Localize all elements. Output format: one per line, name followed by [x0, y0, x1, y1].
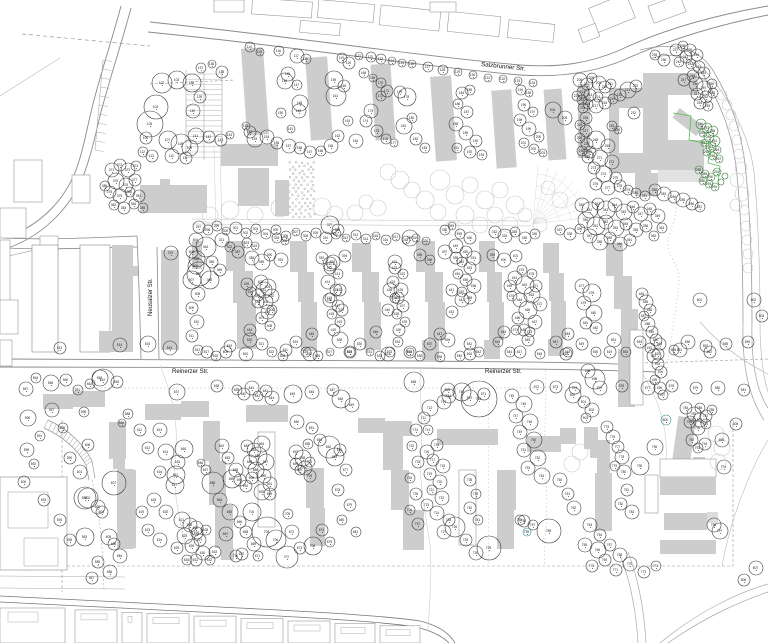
svg-text:768: 768: [617, 553, 623, 557]
svg-text:792: 792: [689, 438, 695, 442]
svg-text:645: 645: [290, 392, 296, 396]
svg-text:335: 335: [522, 236, 528, 240]
svg-text:541: 541: [467, 342, 473, 346]
svg-text:716: 716: [424, 450, 430, 454]
svg-text:661: 661: [173, 473, 179, 477]
svg-text:229: 229: [584, 142, 590, 146]
svg-text:736: 736: [407, 508, 413, 512]
svg-text:711: 711: [421, 416, 426, 420]
svg-text:199: 199: [526, 127, 532, 131]
svg-text:270: 270: [587, 150, 593, 154]
svg-text:459: 459: [457, 232, 463, 236]
svg-text:346: 346: [630, 205, 636, 209]
svg-text:501: 501: [581, 400, 587, 404]
svg-text:739: 739: [473, 492, 479, 496]
svg-text:466: 466: [515, 316, 521, 320]
svg-text:780: 780: [621, 470, 627, 474]
svg-text:676: 676: [337, 448, 343, 452]
svg-text:359: 359: [607, 236, 613, 240]
svg-text:237: 237: [673, 48, 679, 52]
svg-text:771: 771: [613, 568, 619, 572]
svg-text:619: 619: [139, 510, 145, 514]
svg-text:467: 467: [532, 320, 538, 324]
svg-text:818: 818: [563, 352, 569, 356]
svg-text:482: 482: [593, 326, 599, 330]
svg-text:560: 560: [63, 378, 69, 382]
svg-text:757: 757: [530, 523, 536, 527]
svg-text:321: 321: [219, 238, 225, 242]
svg-text:688: 688: [253, 468, 259, 472]
svg-text:388: 388: [249, 256, 255, 260]
svg-text:498: 498: [592, 377, 598, 381]
svg-text:663: 663: [225, 456, 231, 460]
svg-text:351: 351: [593, 224, 599, 228]
svg-text:654: 654: [317, 438, 323, 442]
svg-text:590: 590: [67, 456, 73, 460]
svg-text:112: 112: [140, 150, 145, 154]
svg-text:116: 116: [276, 49, 281, 53]
svg-text:737: 737: [415, 522, 421, 526]
svg-text:710: 710: [233, 554, 239, 558]
svg-text:434: 434: [265, 310, 271, 314]
svg-text:131: 131: [485, 76, 491, 80]
svg-text:667: 667: [223, 532, 229, 536]
svg-text:124: 124: [389, 59, 395, 63]
svg-text:572: 572: [534, 385, 540, 389]
svg-text:704: 704: [249, 510, 255, 514]
svg-text:618: 618: [151, 498, 157, 502]
svg-text:816: 816: [467, 352, 473, 356]
svg-text:714: 714: [425, 428, 431, 432]
svg-text:820: 820: [655, 352, 661, 356]
svg-text:636: 636: [194, 531, 200, 535]
svg-text:448: 448: [501, 330, 507, 334]
svg-text:630: 630: [200, 551, 206, 555]
svg-text:717: 717: [430, 458, 436, 462]
svg-text:314: 314: [363, 237, 369, 241]
svg-text:460: 460: [467, 236, 473, 240]
svg-text:372: 372: [117, 163, 123, 167]
svg-text:253: 253: [710, 91, 716, 95]
svg-text:508: 508: [195, 292, 201, 296]
svg-text:428: 428: [394, 312, 400, 316]
svg-text:274: 274: [601, 172, 607, 176]
svg-text:430: 430: [396, 328, 402, 332]
svg-text:600: 600: [21, 480, 27, 484]
svg-text:499: 499: [585, 369, 591, 373]
svg-text:207: 207: [584, 82, 590, 86]
svg-text:521: 521: [259, 342, 265, 346]
svg-text:515: 515: [145, 342, 151, 346]
svg-text:813: 813: [347, 350, 353, 354]
svg-text:352: 352: [603, 220, 609, 224]
svg-text:707: 707: [284, 555, 290, 559]
svg-text:658: 658: [210, 481, 216, 485]
svg-text:181: 181: [401, 124, 407, 128]
svg-text:471: 471: [533, 284, 539, 288]
svg-text:718: 718: [440, 464, 446, 468]
svg-text:147: 147: [294, 83, 300, 87]
svg-text:749: 749: [517, 430, 523, 434]
svg-text:715: 715: [434, 443, 440, 447]
svg-text:241: 241: [683, 55, 689, 59]
svg-text:479: 479: [581, 301, 587, 305]
svg-text:553: 553: [637, 340, 643, 344]
svg-text:640: 640: [241, 392, 247, 396]
svg-text:581: 581: [741, 388, 747, 392]
svg-text:585: 585: [95, 560, 101, 564]
svg-text:255: 255: [705, 104, 711, 108]
svg-text:789: 789: [687, 420, 693, 424]
svg-text:465: 465: [525, 308, 531, 312]
svg-text:302: 302: [243, 231, 249, 235]
svg-text:629: 629: [174, 546, 180, 550]
svg-text:334: 334: [512, 230, 518, 234]
svg-text:561: 561: [75, 388, 81, 392]
svg-text:744: 744: [446, 394, 452, 398]
svg-text:197: 197: [530, 110, 536, 114]
svg-text:288: 288: [696, 168, 702, 172]
svg-text:258: 258: [710, 129, 716, 133]
svg-text:571: 571: [481, 392, 487, 396]
svg-text:745: 745: [509, 394, 515, 398]
svg-text:369: 369: [217, 268, 223, 272]
svg-text:146: 146: [282, 79, 288, 83]
svg-text:766: 766: [595, 548, 601, 552]
svg-text:762: 762: [571, 506, 577, 510]
svg-text:436: 436: [327, 298, 333, 302]
svg-text:659: 659: [229, 477, 235, 481]
svg-text:125: 125: [399, 61, 405, 65]
svg-text:620: 620: [163, 510, 169, 514]
svg-text:599: 599: [24, 448, 30, 452]
svg-text:156: 156: [274, 141, 280, 145]
svg-text:695: 695: [233, 468, 239, 472]
svg-text:671: 671: [255, 554, 261, 558]
svg-text:422: 422: [392, 266, 398, 270]
svg-text:591: 591: [37, 434, 43, 438]
svg-text:777: 777: [615, 445, 621, 449]
svg-text:188: 188: [453, 122, 459, 126]
svg-text:693: 693: [259, 490, 265, 494]
svg-text:172: 172: [378, 94, 384, 98]
svg-text:665: 665: [227, 510, 233, 514]
svg-text:652: 652: [326, 445, 332, 449]
svg-text:118: 118: [303, 57, 308, 61]
svg-text:285: 285: [680, 198, 686, 202]
svg-text:435: 435: [337, 288, 343, 292]
svg-text:719: 719: [427, 472, 433, 476]
svg-text:588: 588: [125, 412, 131, 416]
svg-text:587: 587: [89, 576, 95, 580]
svg-text:456: 456: [471, 284, 477, 288]
svg-text:677: 677: [343, 468, 349, 472]
svg-text:132: 132: [500, 77, 506, 81]
svg-text:649: 649: [349, 403, 355, 407]
svg-text:152: 152: [247, 130, 253, 134]
svg-text:266: 266: [710, 154, 716, 158]
svg-text:113: 113: [149, 154, 154, 158]
svg-text:505: 505: [189, 250, 195, 254]
svg-text:512: 512: [195, 348, 201, 352]
svg-text:201: 201: [521, 141, 527, 145]
svg-text:155: 155: [243, 124, 249, 128]
svg-text:497: 497: [660, 393, 666, 397]
svg-text:109: 109: [187, 146, 193, 150]
svg-text:385: 385: [140, 206, 146, 210]
svg-text:614: 614: [163, 450, 169, 454]
svg-text:674: 674: [319, 528, 325, 532]
svg-text:153: 153: [252, 137, 258, 141]
svg-text:380: 380: [127, 190, 133, 194]
svg-text:564: 564: [33, 376, 39, 380]
svg-text:Reinerzer Str.: Reinerzer Str.: [172, 369, 209, 375]
svg-text:495: 495: [652, 378, 658, 382]
svg-text:518: 518: [213, 354, 219, 358]
svg-text:170: 170: [378, 81, 384, 85]
svg-text:668: 668: [243, 530, 249, 534]
svg-text:742: 742: [476, 397, 482, 401]
svg-text:760: 760: [557, 478, 563, 482]
svg-text:775: 775: [604, 425, 610, 429]
svg-text:810: 810: [243, 352, 249, 356]
svg-text:162: 162: [335, 134, 341, 138]
svg-text:526: 526: [315, 354, 321, 358]
svg-text:608: 608: [85, 443, 91, 447]
svg-text:615: 615: [175, 460, 181, 464]
svg-text:433: 433: [255, 300, 261, 304]
svg-text:399: 399: [490, 253, 496, 257]
svg-text:486: 486: [647, 308, 653, 312]
svg-text:358: 358: [597, 240, 603, 244]
svg-text:195: 195: [526, 91, 532, 95]
svg-text:309: 309: [313, 231, 319, 235]
svg-text:377: 377: [132, 178, 138, 182]
svg-text:648: 648: [338, 397, 344, 401]
svg-text:651: 651: [309, 426, 315, 430]
svg-text:247: 247: [681, 78, 687, 82]
svg-text:375: 375: [113, 179, 119, 183]
svg-text:452: 452: [459, 260, 465, 264]
svg-text:431: 431: [261, 288, 267, 292]
svg-text:547: 547: [553, 340, 559, 344]
svg-text:268: 268: [593, 138, 599, 142]
svg-text:527: 527: [327, 350, 333, 354]
svg-text:723: 723: [424, 503, 430, 507]
svg-text:297: 297: [196, 225, 202, 229]
svg-text:105: 105: [147, 122, 153, 126]
svg-text:624: 624: [157, 538, 163, 542]
svg-text:464: 464: [517, 298, 523, 302]
svg-text:269: 269: [605, 144, 611, 148]
svg-text:672: 672: [289, 530, 295, 534]
svg-text:551: 551: [611, 338, 617, 342]
svg-text:338: 338: [567, 232, 573, 236]
svg-text:360: 360: [617, 242, 623, 246]
svg-text:305: 305: [273, 228, 279, 232]
svg-text:805: 805: [733, 422, 739, 426]
svg-text:374: 374: [133, 164, 139, 168]
svg-text:573: 573: [553, 385, 559, 389]
svg-text:473: 473: [527, 330, 533, 334]
svg-text:566: 566: [48, 381, 54, 385]
svg-text:689: 689: [261, 474, 267, 478]
svg-text:282: 282: [652, 188, 658, 192]
svg-text:494: 494: [658, 370, 664, 374]
svg-text:214: 214: [595, 95, 601, 99]
svg-text:567: 567: [23, 387, 29, 391]
svg-text:681: 681: [353, 530, 359, 534]
svg-text:606: 606: [111, 542, 117, 546]
svg-text:481: 481: [583, 321, 589, 325]
svg-text:666: 666: [237, 520, 243, 524]
svg-text:261: 261: [712, 139, 718, 143]
svg-text:198: 198: [517, 118, 523, 122]
svg-text:613: 613: [157, 428, 163, 432]
svg-text:767: 767: [607, 543, 613, 547]
svg-text:754: 754: [539, 474, 545, 478]
svg-text:752: 752: [535, 456, 541, 460]
svg-text:724: 724: [434, 511, 440, 515]
svg-text:743: 743: [459, 390, 465, 394]
svg-text:211: 211: [608, 82, 613, 86]
svg-text:287: 287: [697, 205, 703, 209]
svg-text:373: 373: [125, 168, 131, 172]
svg-text:814: 814: [385, 352, 391, 356]
svg-text:350: 350: [583, 218, 589, 222]
svg-text:506: 506: [193, 264, 199, 268]
svg-text:778: 778: [619, 455, 625, 459]
svg-text:227: 227: [583, 129, 589, 133]
svg-text:189: 189: [463, 131, 469, 135]
svg-text:220: 220: [617, 93, 623, 97]
svg-text:664: 664: [217, 498, 223, 502]
svg-text:631: 631: [193, 558, 199, 562]
svg-text:589: 589: [119, 421, 125, 425]
svg-text:343: 343: [603, 208, 609, 212]
svg-text:726: 726: [452, 525, 458, 529]
svg-text:235: 235: [652, 53, 658, 57]
svg-text:175: 175: [374, 129, 380, 133]
svg-text:272: 272: [609, 160, 615, 164]
svg-text:177: 177: [391, 141, 397, 145]
svg-text:115: 115: [257, 50, 262, 54]
svg-text:803: 803: [759, 314, 765, 318]
svg-text:562: 562: [87, 382, 93, 386]
svg-text:799: 799: [721, 465, 727, 469]
svg-text:291: 291: [714, 170, 720, 174]
svg-text:315: 315: [373, 234, 379, 238]
svg-text:390: 390: [267, 253, 273, 257]
svg-text:391: 391: [278, 258, 284, 262]
svg-text:299: 299: [214, 224, 220, 228]
svg-text:319: 319: [413, 236, 419, 240]
svg-text:121: 121: [356, 54, 362, 58]
svg-text:307: 307: [293, 230, 299, 234]
svg-text:605: 605: [106, 535, 112, 539]
svg-text:549: 549: [579, 342, 585, 346]
svg-text:203: 203: [540, 151, 546, 155]
svg-text:143: 143: [218, 138, 224, 142]
svg-text:733: 733: [415, 460, 421, 464]
svg-text:469: 469: [507, 284, 513, 288]
svg-text:611: 611: [137, 428, 142, 432]
svg-text:383: 383: [121, 206, 127, 210]
svg-text:213: 213: [587, 93, 593, 97]
svg-text:477: 477: [579, 284, 585, 288]
svg-text:507: 507: [189, 278, 195, 282]
svg-text:802: 802: [751, 298, 757, 302]
svg-text:224: 224: [574, 94, 580, 98]
svg-text:461: 461: [512, 276, 518, 280]
svg-text:691: 691: [267, 482, 273, 486]
svg-text:331: 331: [449, 224, 455, 228]
svg-text:712: 712: [427, 406, 433, 410]
svg-text:349: 349: [655, 214, 661, 218]
svg-text:103: 103: [174, 78, 180, 82]
svg-text:304: 304: [263, 232, 269, 236]
svg-text:811: 811: [283, 348, 288, 352]
svg-text:104: 104: [153, 105, 159, 109]
svg-text:650: 650: [294, 420, 300, 424]
svg-text:138: 138: [189, 81, 195, 85]
svg-text:336: 336: [532, 232, 538, 236]
svg-text:545: 545: [525, 338, 531, 342]
svg-text:478: 478: [589, 291, 595, 295]
svg-text:294: 294: [712, 185, 718, 189]
svg-text:489: 489: [649, 330, 655, 334]
svg-text:419: 419: [337, 320, 343, 324]
svg-text:702: 702: [297, 468, 303, 472]
svg-text:445: 445: [309, 332, 315, 336]
svg-text:329: 329: [407, 236, 413, 240]
svg-text:308: 308: [303, 234, 309, 238]
svg-text:637: 637: [174, 390, 180, 394]
svg-text:635: 635: [187, 523, 193, 527]
svg-text:249: 249: [701, 86, 707, 90]
svg-text:708: 708: [310, 544, 316, 548]
svg-text:806: 806: [719, 438, 725, 442]
svg-text:812: 812: [307, 352, 313, 356]
svg-text:784: 784: [683, 406, 689, 410]
svg-text:339: 339: [577, 227, 583, 231]
svg-text:200: 200: [536, 135, 542, 139]
svg-text:524: 524: [293, 340, 299, 344]
svg-text:596: 596: [25, 416, 31, 420]
svg-text:586: 586: [107, 570, 113, 574]
svg-text:397: 397: [442, 250, 448, 254]
svg-text:368: 368: [207, 278, 213, 282]
svg-text:327: 327: [327, 223, 333, 227]
svg-text:301: 301: [233, 226, 239, 230]
svg-text:626: 626: [189, 544, 195, 548]
svg-text:446: 446: [373, 330, 379, 334]
svg-text:289: 289: [702, 172, 708, 176]
svg-text:550: 550: [593, 350, 599, 354]
svg-text:250: 250: [709, 82, 715, 86]
svg-text:432: 432: [269, 294, 275, 298]
svg-text:276: 276: [593, 182, 599, 186]
svg-text:772: 772: [589, 564, 595, 568]
svg-text:755: 755: [546, 529, 552, 533]
svg-text:290: 290: [708, 175, 714, 179]
svg-text:602: 602: [85, 496, 91, 500]
svg-text:779: 779: [612, 464, 618, 468]
svg-text:414: 414: [325, 280, 331, 284]
svg-text:503: 503: [583, 416, 589, 420]
svg-text:386: 386: [102, 184, 108, 188]
svg-text:163: 163: [345, 119, 351, 123]
